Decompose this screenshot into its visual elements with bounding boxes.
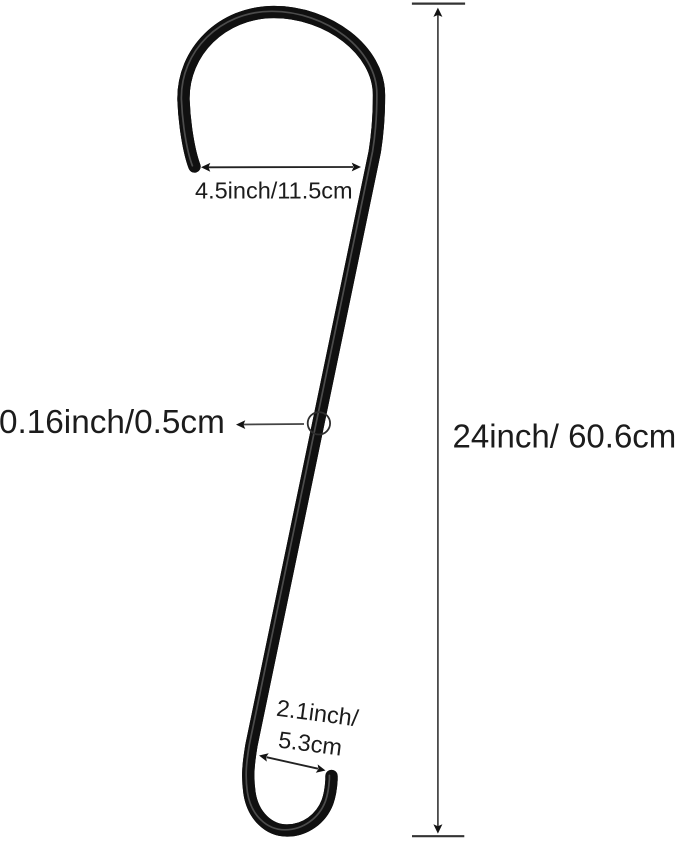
svg-text:0.16inch/0.5cm: 0.16inch/0.5cm [0, 404, 225, 441]
svg-text:24inch/ 60.6cm: 24inch/ 60.6cm [453, 418, 677, 455]
svg-text:4.5inch/11.5cm: 4.5inch/11.5cm [195, 177, 353, 203]
